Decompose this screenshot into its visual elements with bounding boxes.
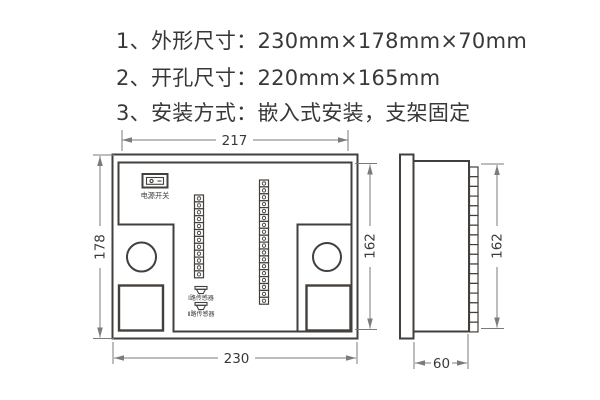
sensor-connectors: Ⅰ路传感器 Ⅱ路传感器 <box>188 287 215 319</box>
terminal-cell <box>470 235 479 245</box>
bracket-slot-left <box>119 286 163 331</box>
dim-left-value: 178 <box>93 234 109 260</box>
terminal-cell <box>470 313 479 323</box>
terminal-cell <box>260 249 269 256</box>
terminal-cell <box>195 243 204 250</box>
terminal-cell <box>260 270 269 277</box>
terminal-cell <box>195 195 204 202</box>
dim-left-178: 178 <box>93 155 115 339</box>
terminal-cell <box>260 221 269 228</box>
dim-side-depth-value: 60 <box>433 356 450 372</box>
terminal-cell <box>260 297 269 304</box>
side-front-bezel <box>400 155 414 339</box>
dim-bottom-230: 230 <box>113 342 357 367</box>
dimension-drawing-page: 1、外形尺寸：230mm×178mm×70mm 2、开孔尺寸：220mm×165… <box>0 0 600 400</box>
terminal-cell <box>195 264 204 271</box>
terminal-cell <box>470 322 479 332</box>
terminal-cell <box>470 274 479 284</box>
terminal-cell <box>470 303 479 313</box>
terminal-cell <box>470 225 479 235</box>
terminal-cell <box>260 290 269 297</box>
power-switch-o-mark <box>150 179 153 182</box>
sensor2-label: Ⅱ路传感器 <box>188 310 215 318</box>
terminal-cell <box>195 223 204 230</box>
terminal-cell <box>470 186 479 196</box>
terminal-cell <box>195 216 204 223</box>
terminal-strip-right <box>260 180 269 304</box>
terminal-cell <box>470 196 479 206</box>
terminal-cell <box>470 264 479 274</box>
terminal-cell <box>470 206 479 216</box>
terminal-cell <box>195 202 204 209</box>
terminal-cell <box>260 256 269 263</box>
terminal-cell <box>260 194 269 201</box>
terminal-cell <box>260 187 269 194</box>
mounting-hole-left <box>127 243 156 272</box>
terminal-strip-left <box>195 195 204 278</box>
dim-bottom-value: 230 <box>224 351 250 367</box>
terminal-cell <box>260 242 269 249</box>
terminal-cell <box>470 293 479 303</box>
terminal-cell <box>260 201 269 208</box>
rear-view: 电源开关 Ⅰ路传感器 Ⅱ路传感器 <box>93 130 379 367</box>
sensor1-label: Ⅰ路传感器 <box>188 294 214 302</box>
rear-outer-outline <box>113 155 358 339</box>
dim-top-217: 217 <box>122 130 348 151</box>
terminal-cell <box>260 180 269 187</box>
side-view: 162 60 <box>400 155 506 373</box>
terminal-cell <box>195 230 204 237</box>
dim-right-162: 162 <box>355 164 379 330</box>
terminal-cell <box>260 208 269 215</box>
terminal-cell <box>260 263 269 270</box>
power-switch: 电源开关 <box>141 174 170 200</box>
terminal-cell <box>470 216 479 226</box>
sensor2-plug-icon-body <box>197 305 206 309</box>
terminal-cell <box>470 177 479 187</box>
mounting-hole-right <box>313 243 341 271</box>
terminal-cell <box>260 277 269 284</box>
terminal-cell <box>195 271 204 278</box>
terminal-cell <box>470 254 479 264</box>
terminal-cell <box>470 245 479 255</box>
terminal-cell <box>260 284 269 291</box>
terminal-cell <box>195 236 204 243</box>
dim-side-60: 60 <box>414 334 468 372</box>
terminal-cell <box>260 215 269 222</box>
dim-side-162: 162 <box>481 164 506 329</box>
side-terminal-ribs <box>470 167 479 332</box>
bracket-slot-right <box>307 286 351 331</box>
terminal-cell <box>195 250 204 257</box>
terminal-cell <box>260 228 269 235</box>
power-switch-label: 电源开关 <box>141 191 170 200</box>
technical-drawing: 电源开关 Ⅰ路传感器 Ⅱ路传感器 <box>0 0 600 400</box>
side-body <box>414 161 470 332</box>
terminal-cell <box>260 235 269 242</box>
dim-side-height-value: 162 <box>490 233 506 259</box>
terminal-cell <box>195 257 204 264</box>
terminal-cell <box>470 167 479 177</box>
dim-top-value: 217 <box>222 133 248 149</box>
sensor1-plug-icon-body <box>197 289 206 293</box>
terminal-cell <box>470 283 479 293</box>
terminal-cell <box>195 209 204 216</box>
dim-right-value: 162 <box>363 233 379 259</box>
